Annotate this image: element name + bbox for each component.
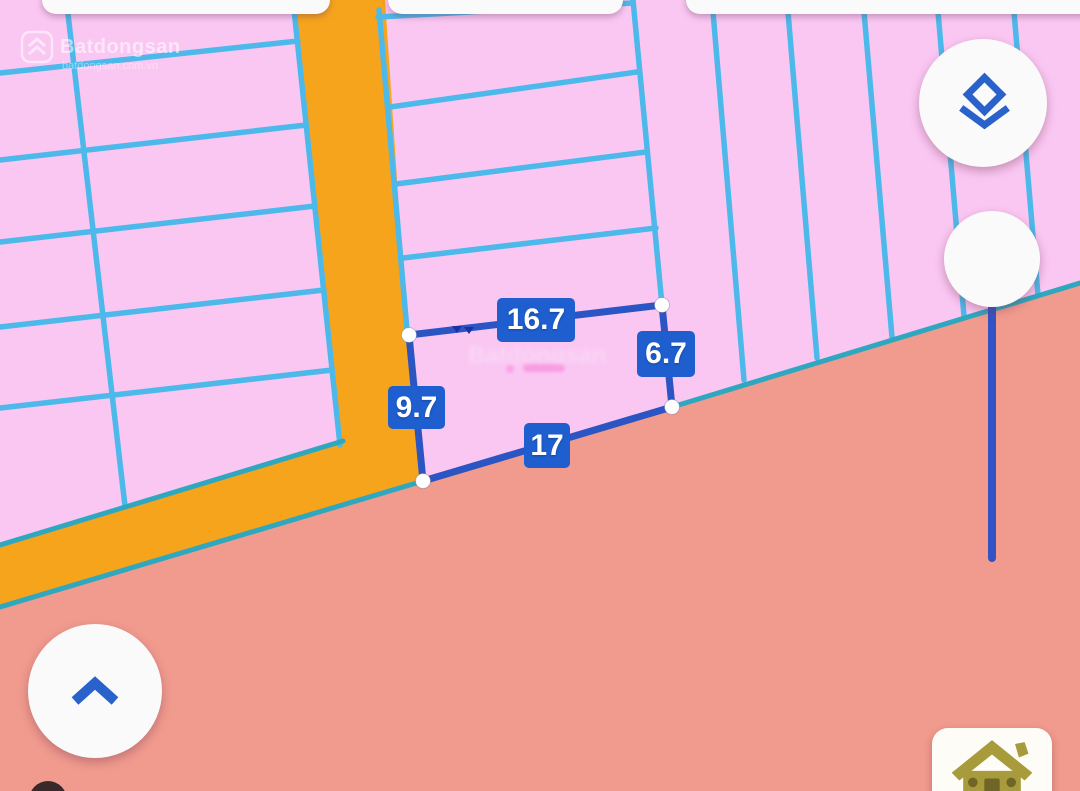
home-button[interactable] — [932, 728, 1052, 791]
measurement-label-right: 6.7 — [637, 331, 695, 377]
vertex-handle[interactable] — [655, 298, 670, 313]
brand-watermark: Batdongsan batdongsan.com.vn — [20, 30, 181, 72]
layers-icon — [952, 72, 1014, 134]
brand-name: Batdongsan — [60, 36, 181, 59]
collapse-button[interactable] — [28, 624, 162, 758]
zoom-slider-knob[interactable] — [944, 211, 1040, 307]
zoom-slider-track[interactable] — [988, 300, 996, 562]
measurement-label-left: 9.7 — [388, 386, 445, 429]
ghost-watermark-smear — [523, 364, 565, 372]
brand-chevrons-icon — [20, 30, 54, 64]
map-screen: Batdongsan Batdongsan batdongsan.com.vn … — [0, 0, 1080, 791]
chevron-up-icon — [63, 671, 127, 711]
parcel-arrow-icon — [452, 326, 462, 333]
layers-button[interactable] — [919, 39, 1047, 167]
measurement-label-bottom: 17 — [524, 423, 570, 468]
top-card-right[interactable] — [686, 0, 1080, 14]
measurement-label-top: 16.7 — [497, 298, 575, 342]
vertex-handle[interactable] — [416, 474, 431, 489]
vertex-handle[interactable] — [402, 328, 417, 343]
map-canvas[interactable] — [0, 0, 1080, 791]
top-card-middle[interactable] — [388, 0, 623, 14]
top-card-left[interactable] — [42, 0, 330, 14]
vertex-handle[interactable] — [665, 400, 680, 415]
parcel-arrow-icon — [464, 327, 474, 334]
house-icon — [944, 736, 1040, 791]
brand-domain: batdongsan.com.vn — [62, 60, 181, 72]
ghost-watermark-dot — [506, 365, 514, 373]
